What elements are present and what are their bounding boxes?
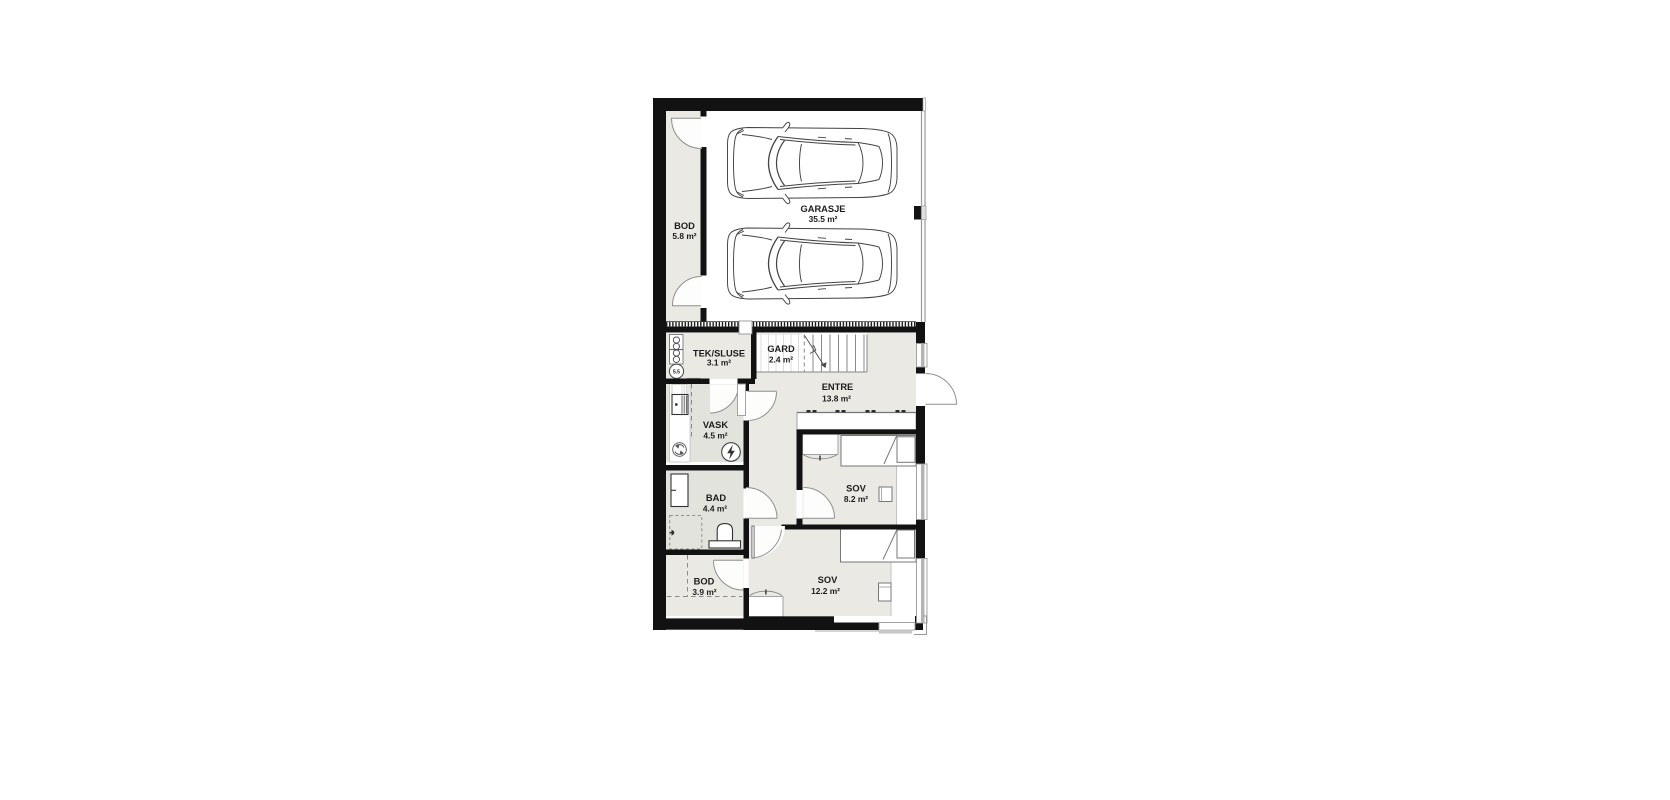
svg-text:ENTRE: ENTRE — [822, 382, 854, 392]
svg-text:4.4 m²: 4.4 m² — [703, 504, 727, 514]
svg-text:12.2 m²: 12.2 m² — [811, 586, 840, 596]
svg-text:VASK: VASK — [703, 420, 728, 430]
svg-text:BAD: BAD — [706, 493, 726, 503]
svg-text:3.1 m²: 3.1 m² — [707, 358, 731, 368]
svg-text:35.5 m²: 35.5 m² — [809, 214, 838, 224]
svg-text:3.9 m²: 3.9 m² — [692, 587, 716, 597]
svg-text:SOV: SOV — [818, 575, 838, 585]
svg-text:SOV: SOV — [846, 484, 866, 494]
svg-text:2.4 m²: 2.4 m² — [769, 355, 793, 365]
svg-text:13.8 m²: 13.8 m² — [822, 394, 851, 404]
svg-text:5.8 m²: 5.8 m² — [672, 231, 696, 241]
svg-text:BOD: BOD — [694, 577, 715, 587]
svg-text:BOD: BOD — [674, 221, 695, 231]
svg-text:GARD: GARD — [767, 344, 795, 354]
svg-text:8.2 m²: 8.2 m² — [844, 494, 868, 504]
svg-text:5.5: 5.5 — [673, 369, 680, 375]
svg-text:4.5 m²: 4.5 m² — [703, 431, 727, 441]
svg-text:GARASJE: GARASJE — [801, 204, 846, 214]
